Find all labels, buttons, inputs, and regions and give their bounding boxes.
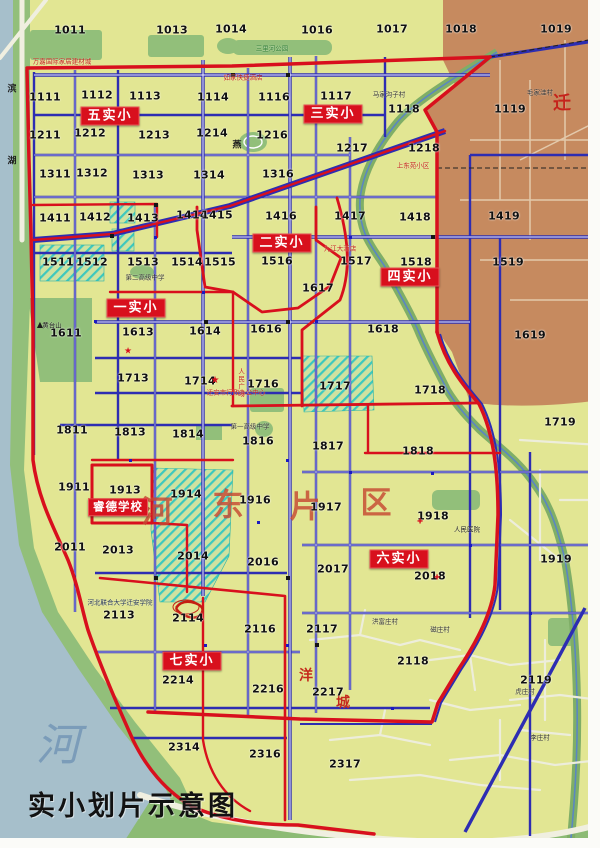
district-map-page: 河东片区洋城迁河滨湖燕 1011101310141016101710181019… [0,0,600,848]
page-margin-bottom [0,838,600,848]
rural-brown-region [425,0,600,406]
page-margin-right [588,0,600,848]
map-graphics [0,0,600,848]
map-title: 实小划片示意图 [28,784,238,823]
